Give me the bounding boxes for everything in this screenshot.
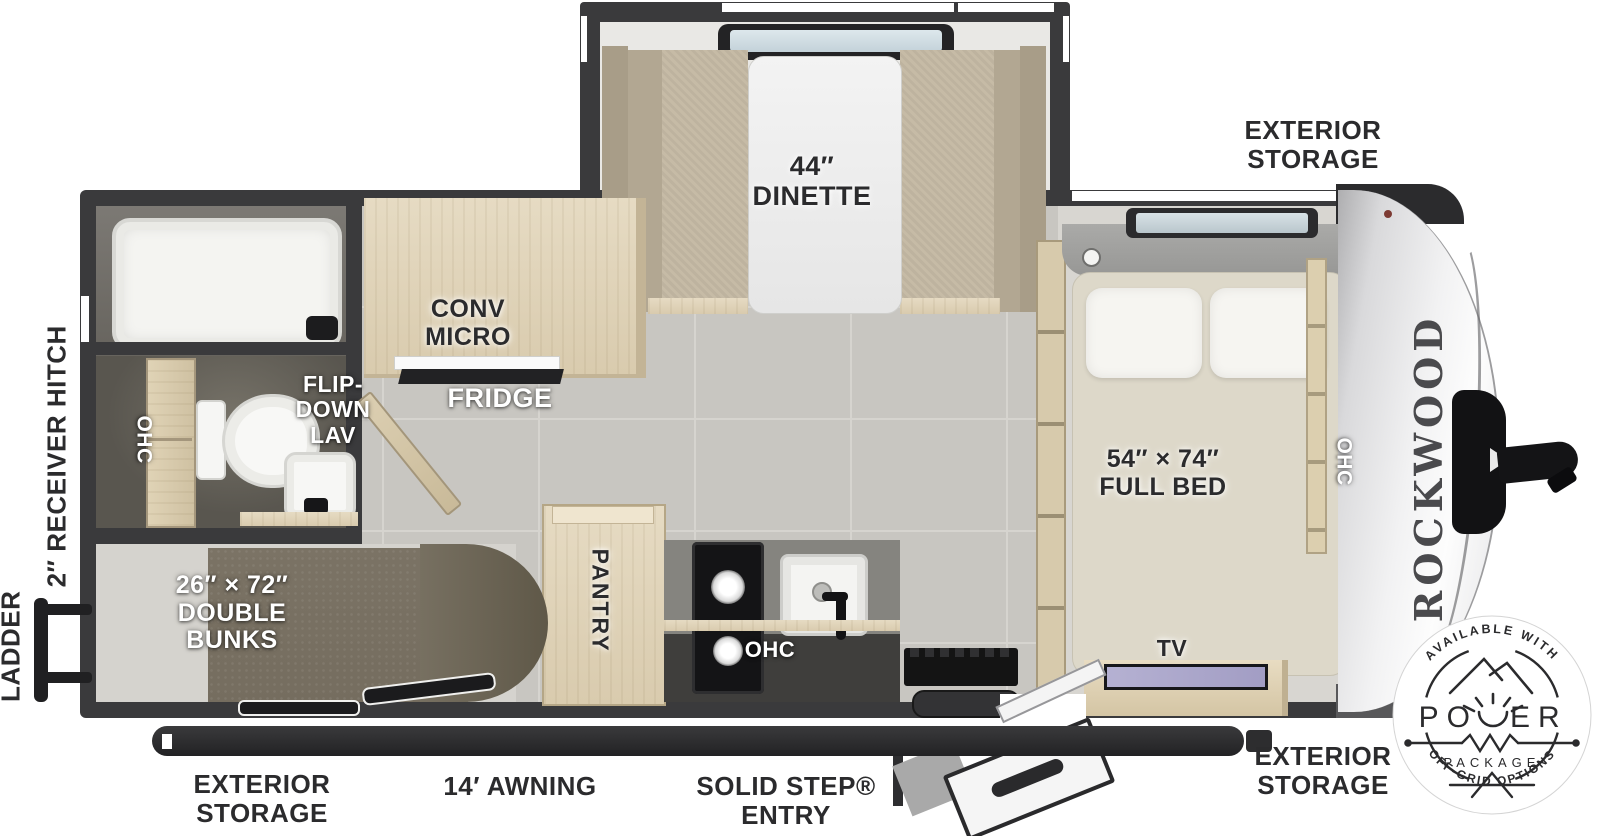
bed-size: 54″ × 74″: [1063, 446, 1263, 474]
furnace-fins: [910, 648, 1012, 657]
rear-ladder-rung: [44, 604, 92, 615]
bed-pillow: [1086, 288, 1202, 378]
tub-front-wall: [96, 342, 346, 355]
step-slot: [989, 757, 1065, 799]
bunks-double: DOUBLE: [142, 600, 322, 628]
full-bed-label: 54″ × 74″ FULL BED: [1063, 446, 1263, 501]
badge-power-prefix: PO: [1419, 701, 1478, 734]
double-bunks-label: 26″ × 72″ DOUBLE BUNKS: [142, 572, 322, 655]
bed-text: FULL BED: [1063, 474, 1263, 502]
micro-line: MICRO: [388, 324, 548, 352]
fridge-front: [398, 369, 564, 384]
stove-burner: [711, 570, 745, 604]
furnace: [904, 648, 1018, 686]
conv-micro-cabinet: [364, 198, 646, 378]
badge-power-suffix: ER: [1510, 701, 1568, 734]
bed-ohc-rail: [1306, 258, 1327, 554]
awning-bar: [152, 726, 1244, 756]
storage-line: EXTERIOR: [1228, 742, 1418, 771]
dinette-bench-right: [900, 50, 994, 302]
tv-label: TV: [1132, 636, 1212, 661]
fridge-top: [394, 356, 560, 370]
bunk-window: [238, 700, 360, 716]
awning-notch: [162, 734, 172, 749]
storage-line: STORAGE: [167, 799, 357, 828]
marker-light: [1384, 210, 1392, 218]
conv-micro-label: CONV MICRO: [388, 296, 548, 351]
dinette-bench-back-right: [994, 50, 1020, 312]
hall-wardrobe: [1036, 240, 1066, 706]
kitchen-ohc-label: OHC: [730, 638, 810, 662]
roof-vent-glass: [1136, 213, 1308, 233]
rear-ladder-rung: [44, 672, 92, 683]
pantry-label: PANTRY: [587, 521, 612, 681]
dinette-size: 44″: [712, 152, 912, 182]
slideout-window-glass: [730, 30, 942, 52]
bunks-text: BUNKS: [142, 627, 322, 655]
slideout-side-window: [1063, 16, 1069, 62]
roof-vent: [1126, 208, 1318, 238]
ladder-label: LADDER: [0, 576, 25, 716]
dinette-bench-base-left: [648, 298, 748, 314]
bedroom-window-strip: [1072, 191, 1340, 201]
nightstand-knob: [1082, 248, 1101, 267]
dinette-label: 44″ DINETTE: [712, 152, 912, 211]
exterior-storage-door-side-label: EXTERIOR STORAGE: [1228, 742, 1418, 799]
lav-counter: [240, 512, 358, 526]
receiver-hitch-label: 2″ RECEIVER HITCH: [43, 321, 72, 591]
sink-faucet-spout: [822, 592, 848, 601]
entry-line: SOLID STEP®: [686, 772, 886, 801]
tv-screen: [1104, 664, 1268, 690]
lav-line: LAV: [263, 423, 403, 448]
storage-line: STORAGE: [1218, 145, 1408, 174]
dinette-bench-base-right: [900, 298, 1000, 314]
exterior-storage-front-label: EXTERIOR STORAGE: [1218, 116, 1408, 173]
dinette-text: DINETTE: [712, 182, 912, 212]
slideout-window-strip: [722, 3, 954, 12]
kitchen-shelf: [664, 620, 900, 631]
storage-line: STORAGE: [1228, 771, 1418, 800]
entry-label: SOLID STEP® ENTRY: [686, 772, 886, 829]
sink-faucet: [836, 596, 846, 640]
shower-faucet: [306, 316, 338, 340]
conv-line: CONV: [388, 296, 548, 324]
entry-line: ENTRY: [686, 801, 886, 830]
slideout-window-strip: [958, 3, 1054, 12]
stove-cooktop: [692, 542, 764, 694]
floorplan: ROCKWOOD GEO PRO 44″ DINETTE CONV MICRO …: [0, 0, 1600, 836]
bath-ohc-label: OHC: [132, 400, 155, 480]
flip-down-lav-label: FLIP- DOWN LAV: [263, 372, 403, 448]
slideout-side-window: [581, 16, 587, 62]
awning-label: 14′ AWNING: [425, 772, 615, 801]
storage-line: EXTERIOR: [1218, 116, 1408, 145]
bunks-size: 26″ × 72″: [142, 572, 322, 600]
rear-wall-window: [81, 296, 89, 342]
exterior-storage-rear-label: EXTERIOR STORAGE: [167, 770, 357, 827]
fridge-label: FRIDGE: [420, 384, 580, 414]
storage-line: EXTERIOR: [167, 770, 357, 799]
down-line: DOWN: [263, 397, 403, 422]
bed-ohc-label: OHC: [1332, 422, 1355, 502]
flip-line: FLIP-: [263, 372, 403, 397]
power-package-badge: AVAILABLE WITH PO ER: [1392, 615, 1592, 815]
bathroom-wall-bottom: [96, 528, 362, 544]
